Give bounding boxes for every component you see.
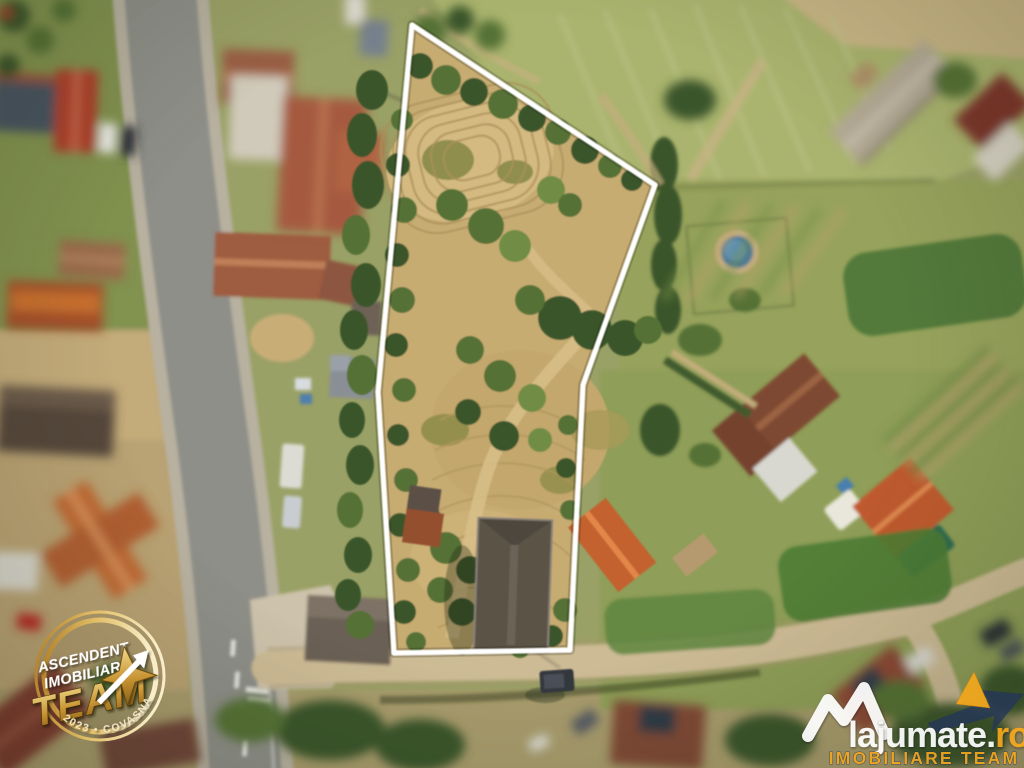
dark-car [119,125,137,156]
site-watermark: lajumate.ro IMOBILIARE TEAM [778,660,1024,768]
white-car [98,122,117,153]
orange-long-roof [6,280,104,331]
panel-roof [0,80,61,133]
main-house-roof [474,518,553,653]
dark-van [539,669,574,693]
gold-sail-icon [956,672,990,708]
rust-shed-roof [402,509,444,548]
solar-house-roof [610,700,706,768]
aerial-photo: ASCENDENT IMOBILIARE TEAM 2023 • COVASNA… [0,0,1024,768]
agency-badge: ASCENDENT IMOBILIARE TEAM 2023 • COVASNA [22,598,178,754]
watermark-tagline: IMOBILIARE TEAM [829,748,1020,768]
driveway [229,75,288,161]
dark-house-roof [0,385,116,457]
parked-van [279,443,304,488]
long-barn-roof [213,232,331,300]
